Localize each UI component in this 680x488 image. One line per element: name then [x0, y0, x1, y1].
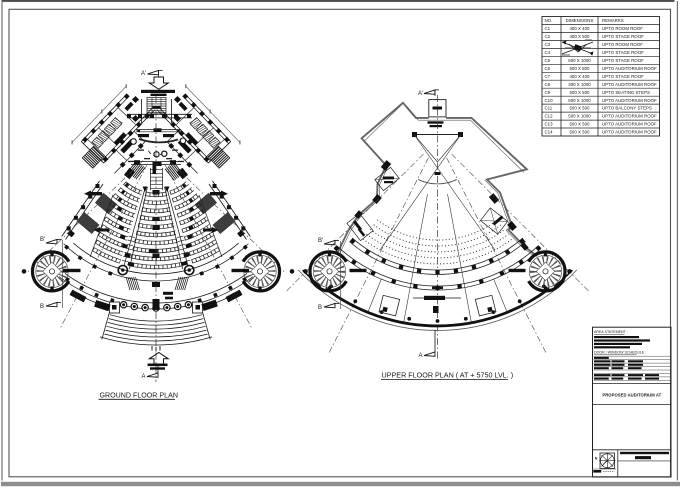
svg-text:C10: C10 — [545, 98, 554, 103]
svg-text:B′: B′ — [40, 237, 46, 243]
svg-text:C5: C5 — [545, 58, 551, 63]
svg-text:DIMENSIONS: DIMENSIONS — [566, 18, 594, 23]
svg-text:B: B — [318, 305, 322, 311]
svg-text:B′: B′ — [318, 238, 324, 244]
svg-text:C3: C3 — [545, 42, 551, 47]
svg-text:A: A — [419, 353, 423, 359]
svg-text:C2: C2 — [545, 34, 551, 39]
svg-text:500 X 800: 500 X 800 — [569, 66, 590, 71]
svg-text:NO.: NO. — [545, 18, 553, 23]
svg-text:C7: C7 — [545, 74, 551, 79]
svg-text:UPTO ROOM ROOF: UPTO ROOM ROOF — [602, 42, 643, 47]
svg-text:B: B — [40, 304, 44, 310]
svg-text:500 X 1000: 500 X 1000 — [568, 114, 591, 119]
svg-text:UPTO AUDITORIUM ROOF: UPTO AUDITORIUM ROOF — [602, 82, 657, 87]
svg-text:500 X 500: 500 X 500 — [569, 130, 590, 135]
svg-text:UPTO STAGE ROOF: UPTO STAGE ROOF — [602, 58, 644, 63]
svg-text:C12: C12 — [545, 114, 554, 119]
svg-text:500 X 500: 500 X 500 — [569, 122, 590, 127]
svg-text:C6: C6 — [545, 66, 551, 71]
svg-text:AREA STATEMENT :: AREA STATEMENT : — [594, 330, 628, 334]
svg-text:C14: C14 — [545, 130, 554, 135]
svg-text:UPPER FLOOR PLAN ( AT + 5750 L: UPPER FLOOR PLAN ( AT + 5750 LVL. ) — [382, 370, 514, 379]
svg-text:400 X 400: 400 X 400 — [569, 26, 590, 31]
svg-text:UPTO AUDITORIUM ROOF: UPTO AUDITORIUM ROOF — [602, 130, 657, 135]
svg-text:UPTO STAGE ROOF: UPTO STAGE ROOF — [602, 50, 644, 55]
svg-text:500 X 500: 500 X 500 — [569, 106, 590, 111]
svg-text:UPTO AUDITORIUM ROOF: UPTO AUDITORIUM ROOF — [602, 66, 657, 71]
svg-text:C11: C11 — [545, 106, 553, 111]
svg-text:N: N — [595, 456, 598, 460]
svg-text:500 X 500: 500 X 500 — [569, 90, 590, 95]
svg-text:UPTO SEATING STEPS: UPTO SEATING STEPS — [602, 90, 650, 95]
svg-text:A′: A′ — [418, 91, 424, 97]
svg-text:C13: C13 — [545, 122, 554, 127]
svg-text:UPTO STAGE ROOF: UPTO STAGE ROOF — [602, 74, 644, 79]
svg-text:UPTO BALCONY STEPS: UPTO BALCONY STEPS — [602, 106, 652, 111]
svg-text:REMARKS: REMARKS — [602, 18, 624, 23]
svg-text:C9: C9 — [545, 90, 551, 95]
svg-text:500 X 1000: 500 X 1000 — [568, 98, 591, 103]
svg-text:C4: C4 — [545, 50, 551, 55]
svg-text:UPTO AUDITORIUM ROOF: UPTO AUDITORIUM ROOF — [602, 98, 657, 103]
svg-text:C8: C8 — [545, 82, 551, 87]
svg-text:A′: A′ — [141, 71, 147, 77]
svg-text:C1: C1 — [545, 26, 551, 31]
svg-text:UPTO STAGE ROOF: UPTO STAGE ROOF — [602, 34, 644, 39]
svg-text:500 X 1000: 500 X 1000 — [568, 58, 591, 63]
svg-text:UPTO AUDITORIUM ROOF: UPTO AUDITORIUM ROOF — [602, 114, 657, 119]
svg-text:GROUND FLOOR PLAN: GROUND FLOOR PLAN — [100, 391, 178, 399]
svg-text:300 X 1000: 300 X 1000 — [568, 82, 591, 87]
svg-text:UPTO AUDITORIUM ROOF: UPTO AUDITORIUM ROOF — [602, 122, 657, 127]
svg-text:A: A — [142, 374, 146, 380]
svg-text:UPTO ROOM ROOF: UPTO ROOM ROOF — [602, 26, 643, 31]
svg-text:400 X 500: 400 X 500 — [569, 34, 590, 39]
svg-text:400 X 400: 400 X 400 — [569, 74, 590, 79]
svg-text:PROPOSED AUDITORIUM AT: PROPOSED AUDITORIUM AT — [602, 392, 661, 397]
svg-text:DOOR / WINDOW SCHEDULE :: DOOR / WINDOW SCHEDULE : — [594, 351, 646, 355]
